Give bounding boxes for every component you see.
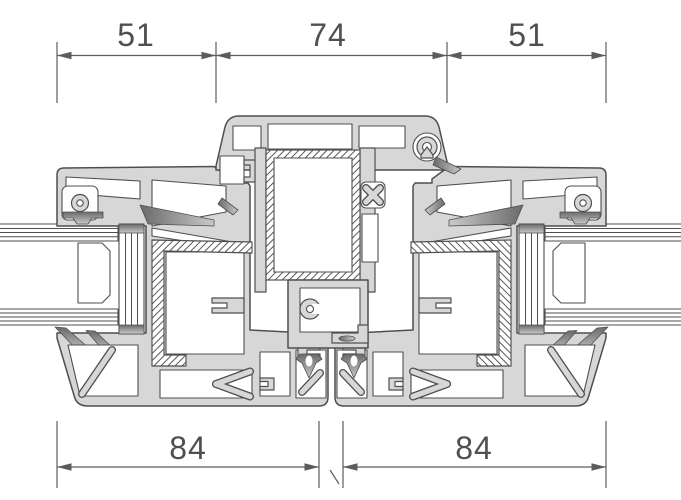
- dimension-label-51-left: 51: [117, 17, 155, 53]
- finger-seal: [339, 336, 355, 341]
- technical-drawing-page: 51 74 51 84 84: [0, 0, 681, 500]
- dimension-label-84-right: 84: [455, 430, 493, 466]
- window-cross-section-drawing: 51 74 51 84 84: [0, 0, 681, 500]
- gap-tick: [330, 470, 339, 484]
- glass-spacer-bar: [78, 243, 110, 303]
- glass-pane-right-inner: [545, 309, 681, 325]
- dimension-label-74: 74: [309, 17, 347, 53]
- x-clip-icon: [366, 188, 380, 202]
- bottom-dimension-row: 84 84: [57, 421, 606, 488]
- dimension-label-84-left: 84: [169, 430, 207, 466]
- top-dimension-row: 51 74 51: [57, 17, 606, 103]
- dimension-label-51-right: 51: [508, 17, 546, 53]
- glass-pane-left-inner: [0, 309, 118, 325]
- glass-edge-gasket-strip: [119, 224, 144, 334]
